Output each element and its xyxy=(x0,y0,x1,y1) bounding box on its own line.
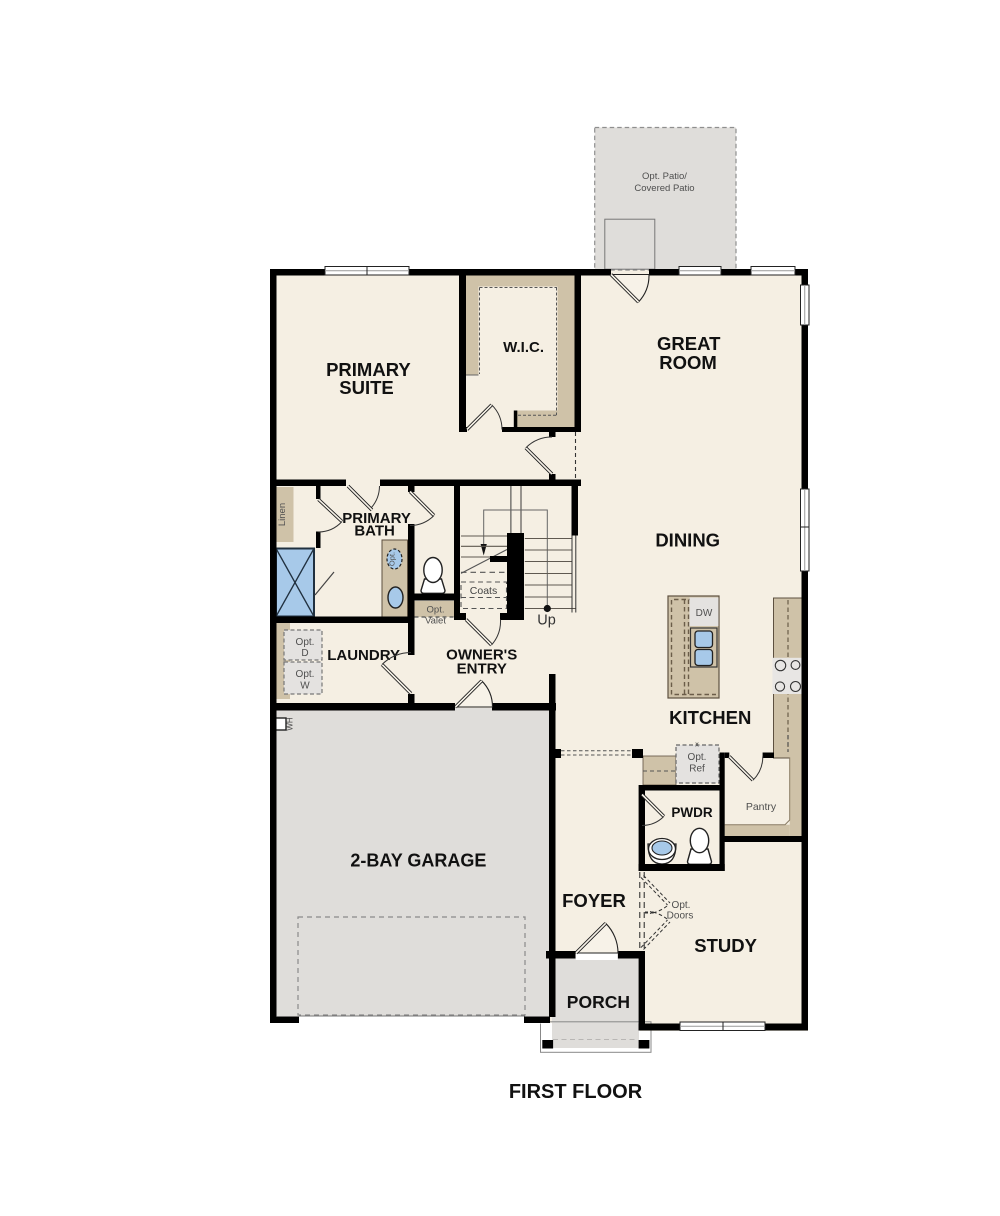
svg-text:SUITE: SUITE xyxy=(339,377,393,398)
svg-text:ROOM: ROOM xyxy=(659,352,717,373)
svg-text:Linen: Linen xyxy=(277,503,288,526)
svg-text:DW: DW xyxy=(696,608,713,619)
svg-text:Ref: Ref xyxy=(689,764,705,775)
svg-text:W.I.C.: W.I.C. xyxy=(503,339,544,356)
svg-text:Opt. Patio/: Opt. Patio/ xyxy=(642,171,687,182)
svg-text:2-BAY GARAGE: 2-BAY GARAGE xyxy=(350,851,486,871)
svg-text:Opt.: Opt. xyxy=(427,605,445,616)
svg-text:LAUNDRY: LAUNDRY xyxy=(327,647,400,664)
svg-text:Opt.: Opt. xyxy=(296,637,315,648)
svg-text:D: D xyxy=(301,648,308,659)
svg-text:Up: Up xyxy=(537,613,556,629)
svg-text:FIRST FLOOR: FIRST FLOOR xyxy=(509,1081,643,1103)
svg-text:KITCHEN: KITCHEN xyxy=(669,707,751,728)
svg-text:Opt.: Opt. xyxy=(688,752,707,763)
svg-text:GREAT: GREAT xyxy=(657,333,721,354)
svg-text:Doors: Doors xyxy=(667,911,694,922)
svg-text:Pantry: Pantry xyxy=(746,801,777,813)
svg-text:Valet: Valet xyxy=(425,616,446,627)
svg-text:Coats: Coats xyxy=(470,585,497,597)
svg-text:WH: WH xyxy=(286,717,295,731)
svg-text:STUDY: STUDY xyxy=(694,935,757,956)
svg-text:Covered Patio: Covered Patio xyxy=(634,183,694,194)
svg-text:PORCH: PORCH xyxy=(567,992,630,1012)
svg-text:BATH: BATH xyxy=(354,523,395,540)
svg-text:DINING: DINING xyxy=(655,530,720,551)
svg-text:x: x xyxy=(695,742,699,749)
svg-text:ENTRY: ENTRY xyxy=(457,661,507,678)
svg-text:W: W xyxy=(300,681,310,692)
svg-text:Opt.: Opt. xyxy=(672,900,691,911)
svg-text:Opt.: Opt. xyxy=(296,669,315,680)
svg-text:FOYER: FOYER xyxy=(562,890,626,911)
svg-text:PWDR: PWDR xyxy=(671,805,712,820)
svg-text:Opt.: Opt. xyxy=(388,552,397,566)
